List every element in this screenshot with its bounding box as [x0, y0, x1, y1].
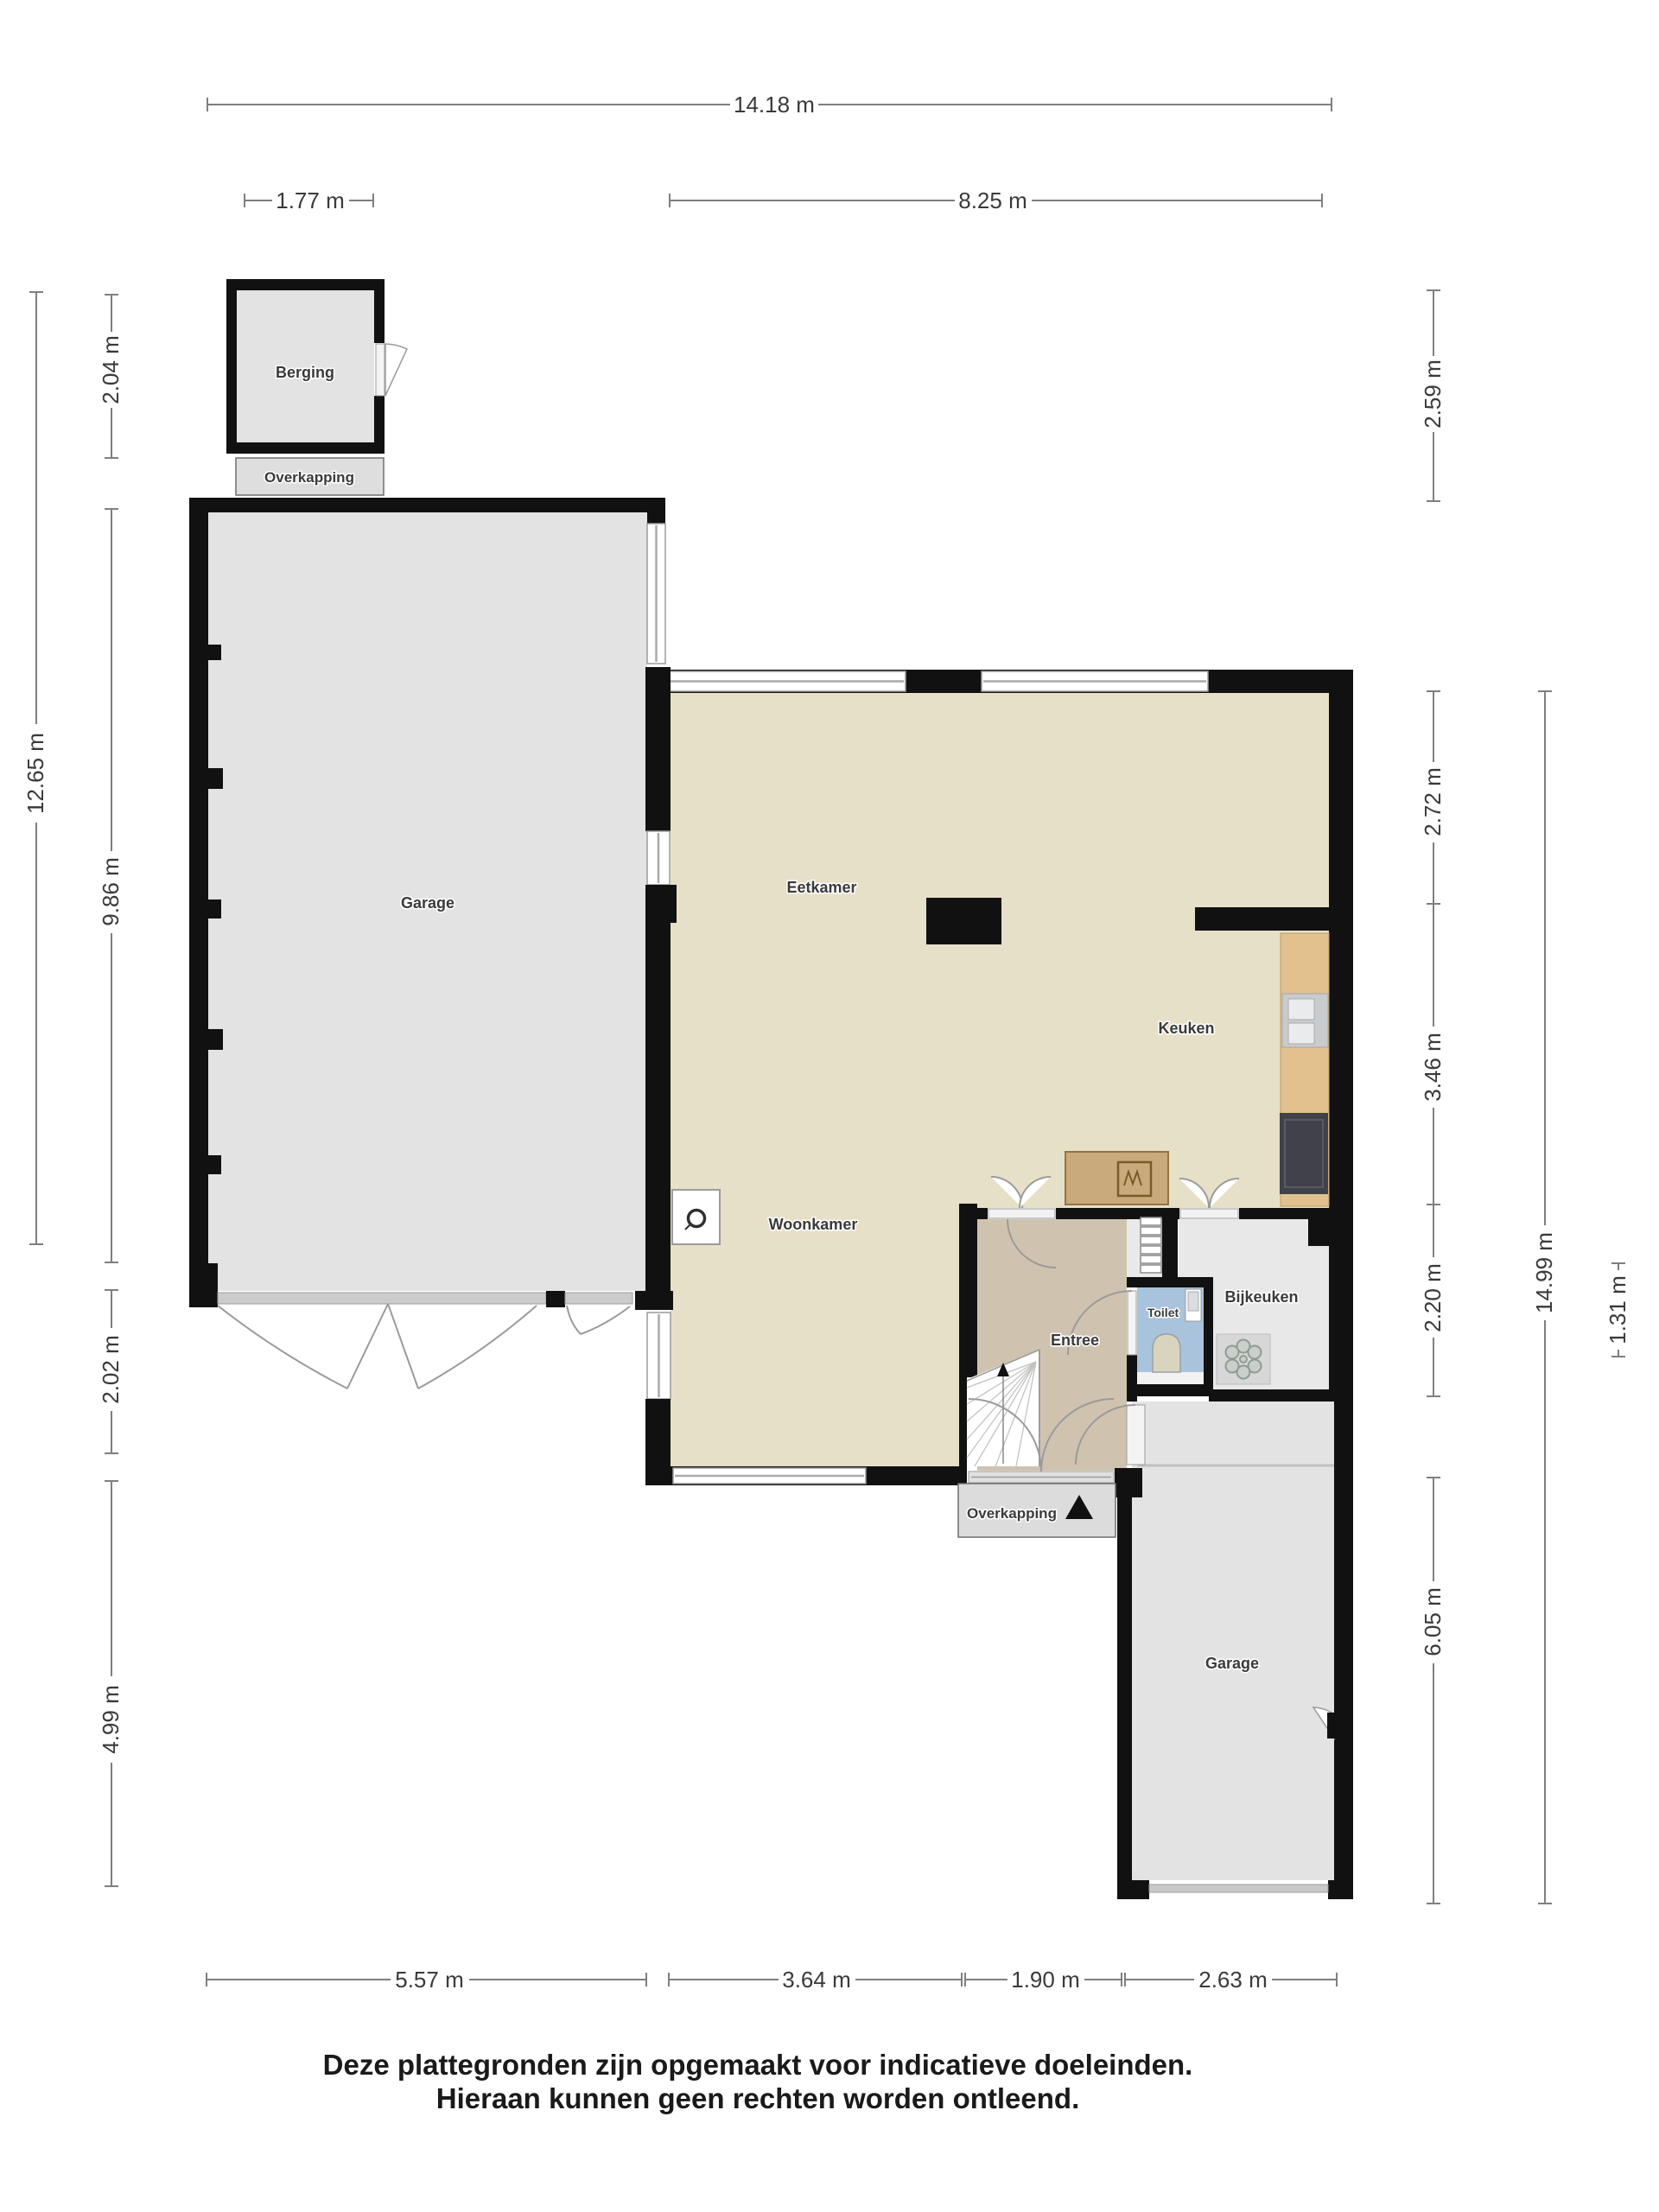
svg-text:12.65 m: 12.65 m: [22, 733, 48, 814]
svg-text:1.31 m: 1.31 m: [1605, 1275, 1630, 1344]
svg-text:Entree: Entree: [1051, 1332, 1099, 1349]
svg-text:4.99 m: 4.99 m: [98, 1685, 124, 1754]
svg-text:6.05 m: 6.05 m: [1420, 1587, 1446, 1656]
svg-text:Eetkamer: Eetkamer: [786, 879, 856, 896]
svg-text:Woonkamer: Woonkamer: [769, 1216, 858, 1233]
svg-text:Overkapping: Overkapping: [264, 469, 354, 486]
svg-text:9.86 m: 9.86 m: [98, 857, 124, 926]
svg-text:Garage: Garage: [1205, 1655, 1259, 1672]
svg-text:14.99 m: 14.99 m: [1531, 1232, 1557, 1313]
svg-text:Toilet: Toilet: [1147, 1306, 1179, 1319]
svg-text:1.77 m: 1.77 m: [276, 188, 345, 213]
svg-text:Garage: Garage: [401, 894, 454, 912]
svg-text:3.64 m: 3.64 m: [782, 1967, 851, 1993]
svg-text:Hieraan kunnen geen rechten wo: Hieraan kunnen geen rechten worden ontle…: [436, 2082, 1079, 2114]
svg-text:3.46 m: 3.46 m: [1420, 1033, 1446, 1102]
svg-text:Overkapping: Overkapping: [967, 1505, 1057, 1522]
svg-text:2.63 m: 2.63 m: [1198, 1967, 1268, 1993]
svg-text:1.90 m: 1.90 m: [1011, 1967, 1080, 1993]
svg-text:Deze plattegronden zijn opgema: Deze plattegronden zijn opgemaakt voor i…: [323, 2049, 1193, 2081]
svg-text:Keuken: Keuken: [1158, 1020, 1214, 1037]
svg-text:14.18 m: 14.18 m: [734, 92, 815, 118]
svg-text:8.25 m: 8.25 m: [958, 188, 1027, 213]
svg-text:2.59 m: 2.59 m: [1420, 359, 1446, 429]
svg-text:2.20 m: 2.20 m: [1420, 1263, 1446, 1332]
svg-text:Bijkeuken: Bijkeuken: [1224, 1288, 1298, 1306]
svg-text:2.72 m: 2.72 m: [1420, 767, 1446, 836]
svg-text:5.57 m: 5.57 m: [395, 1967, 464, 1993]
svg-text:2.02 m: 2.02 m: [98, 1335, 124, 1404]
svg-text:Berging: Berging: [276, 364, 334, 381]
svg-text:2.04 m: 2.04 m: [98, 335, 124, 404]
